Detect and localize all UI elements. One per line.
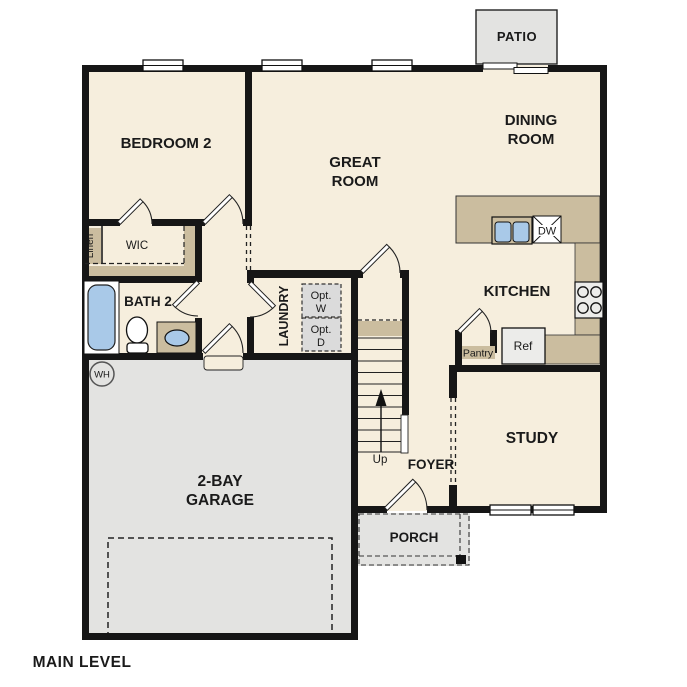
water-heater-label: WH (94, 370, 110, 381)
kitchen-bottom-counter (545, 335, 600, 364)
opt-dryer-box: Opt. D (302, 318, 341, 351)
pantry-closet: Pantry (462, 346, 495, 360)
dishwasher-label: DW (538, 226, 557, 238)
label-linen: Linen (85, 234, 96, 258)
bath-vanity-sink (157, 322, 196, 353)
wall-segment (247, 270, 363, 278)
label-foyer: FOYER (408, 457, 455, 472)
wall-segment (351, 506, 387, 513)
hall-strip-floor (84, 266, 195, 277)
opt-washer-line1: Opt. (311, 290, 332, 302)
stair-landing-strip (358, 321, 402, 336)
porch-post (456, 555, 466, 564)
dishwasher: DW (533, 216, 561, 243)
label-bedroom2: BEDROOM 2 (121, 135, 212, 152)
label-great-line1: GREAT (329, 154, 380, 171)
opt-washer-line2: W (316, 303, 327, 315)
label-study: STUDY (506, 430, 559, 447)
label-porch: PORCH (390, 530, 439, 545)
floor-plan-page: DW Ref Pantry Opt. W Opt. D (0, 0, 687, 687)
wall-segment (243, 353, 358, 360)
label-wic: WIC (126, 240, 148, 252)
wall-segment (449, 365, 457, 398)
floor-plan-drawing: DW Ref Pantry Opt. W Opt. D (0, 0, 687, 687)
opt-dryer-line2: D (317, 337, 325, 349)
wall-segment (82, 219, 120, 226)
wall-segment (245, 72, 252, 226)
opt-dryer-line1: Opt. (311, 324, 332, 336)
pantry-label: Pantry (463, 348, 494, 360)
wall-segment (195, 226, 202, 282)
label-garage-line2: GARAGE (186, 492, 254, 509)
water-heater: WH (90, 362, 114, 386)
label-garage-line1: 2-BAY (197, 473, 243, 490)
label-laundry: LAUNDRY (277, 285, 291, 346)
refrigerator: Ref (502, 328, 545, 364)
wall-segment (152, 219, 205, 226)
plan-title: MAIN LEVEL (33, 654, 132, 671)
label-dining-line1: DINING (505, 112, 558, 129)
label-bath2: BATH 2 (124, 294, 172, 309)
label-kitchen: KITCHEN (484, 283, 551, 300)
label-dining-line2: ROOM (508, 131, 555, 148)
stove (575, 282, 603, 318)
wall-segment (82, 633, 358, 640)
opt-washer-box: Opt. W (302, 284, 341, 317)
wall-segment (455, 330, 462, 365)
kitchen-sink (492, 217, 532, 244)
refrigerator-label: Ref (514, 339, 533, 353)
toilet (127, 317, 149, 353)
bathtub (84, 281, 119, 354)
label-up: Up (373, 454, 388, 466)
wall-segment (351, 270, 358, 640)
label-great-line2: ROOM (332, 173, 379, 190)
wall-segment (402, 270, 409, 415)
label-patio: PATIO (497, 29, 537, 44)
wall-segment (449, 365, 607, 372)
stair-railing (401, 415, 408, 453)
